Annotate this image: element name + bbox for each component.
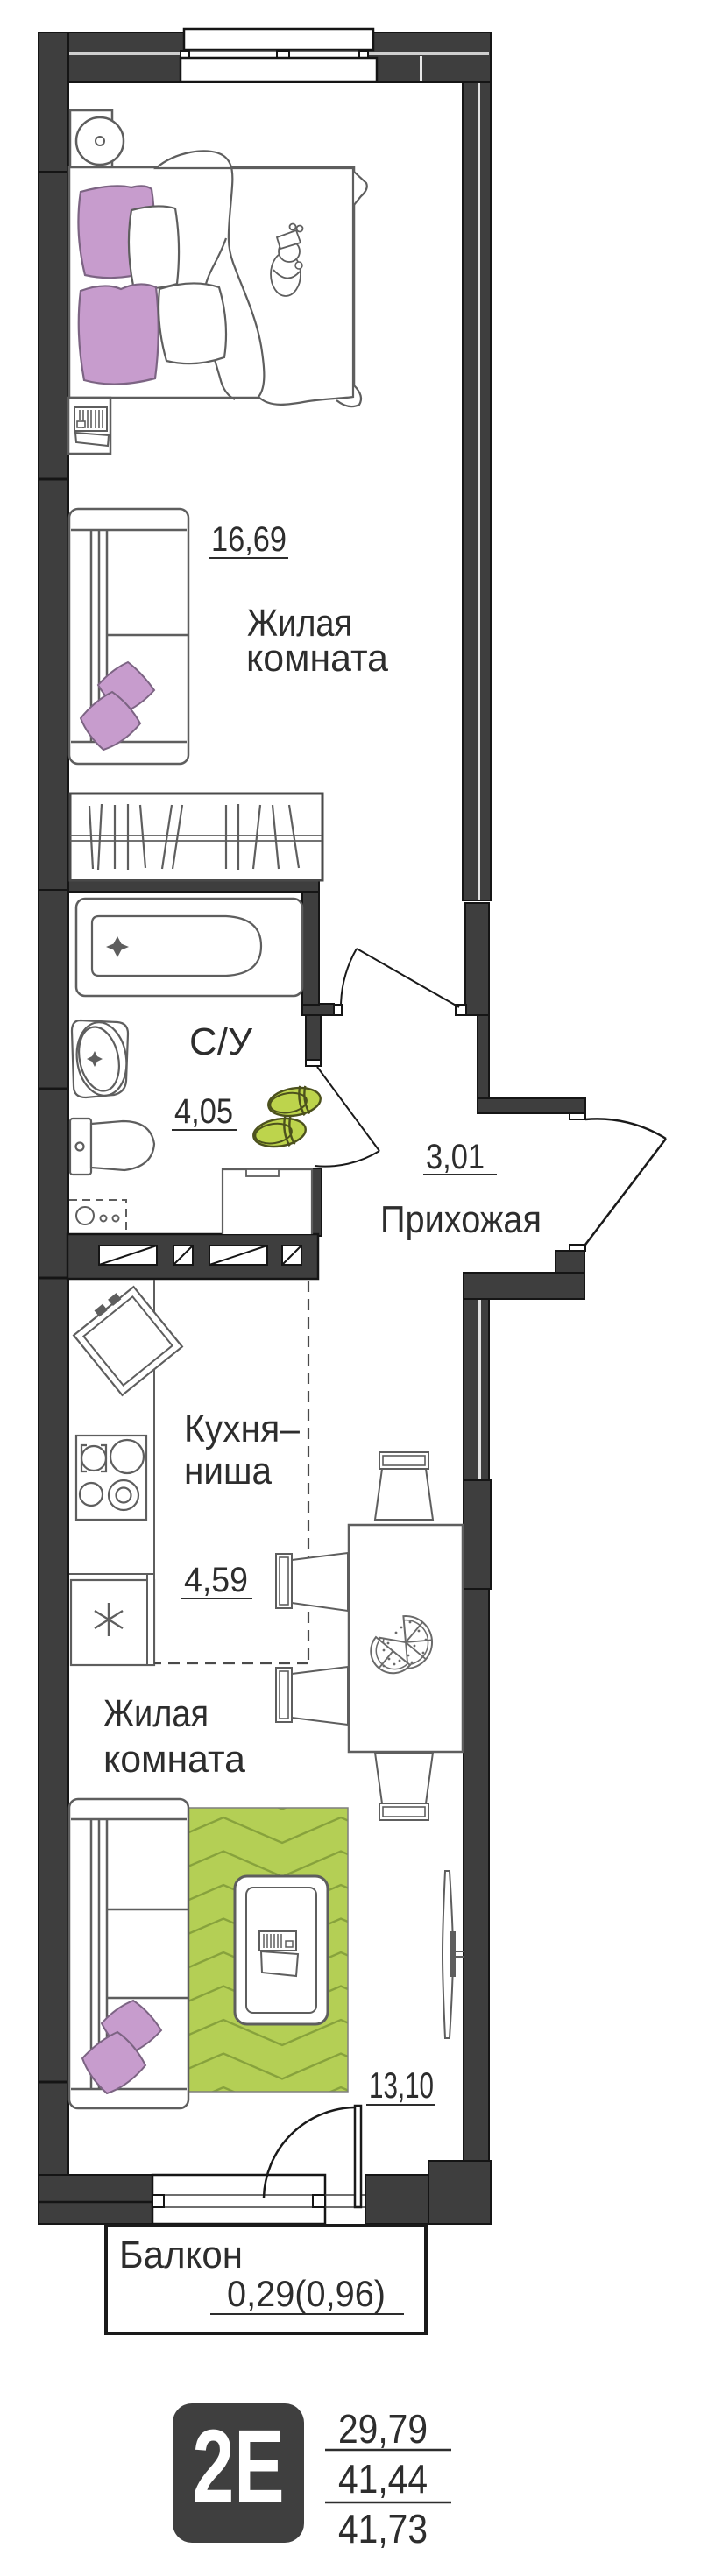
svg-text:4,59: 4,59 bbox=[184, 1561, 248, 1599]
svg-text:0,29(0,96): 0,29(0,96) bbox=[227, 2273, 386, 2314]
svg-text:41,73: 41,73 bbox=[338, 2506, 428, 2551]
svg-text:Прихожая: Прихожая bbox=[380, 1198, 542, 1241]
svg-text:Жилая: Жилая bbox=[103, 1692, 209, 1735]
svg-text:Балкон: Балкон bbox=[119, 2234, 243, 2276]
svg-text:29,79: 29,79 bbox=[338, 2406, 428, 2452]
svg-text:4,05: 4,05 bbox=[174, 1092, 233, 1131]
svg-text:ниша: ниша bbox=[184, 1450, 272, 1493]
svg-text:16,69: 16,69 bbox=[211, 520, 287, 559]
svg-text:комната: комната bbox=[246, 637, 389, 680]
svg-text:комната: комната bbox=[103, 1738, 246, 1781]
svg-text:41,44: 41,44 bbox=[338, 2456, 428, 2502]
svg-text:2Е: 2Е bbox=[193, 2409, 285, 2524]
svg-text:С/У: С/У bbox=[189, 1020, 253, 1063]
svg-text:Кухня–: Кухня– bbox=[184, 1408, 300, 1450]
svg-text:13,10: 13,10 bbox=[369, 2064, 434, 2106]
svg-text:3,01: 3,01 bbox=[426, 1138, 485, 1176]
